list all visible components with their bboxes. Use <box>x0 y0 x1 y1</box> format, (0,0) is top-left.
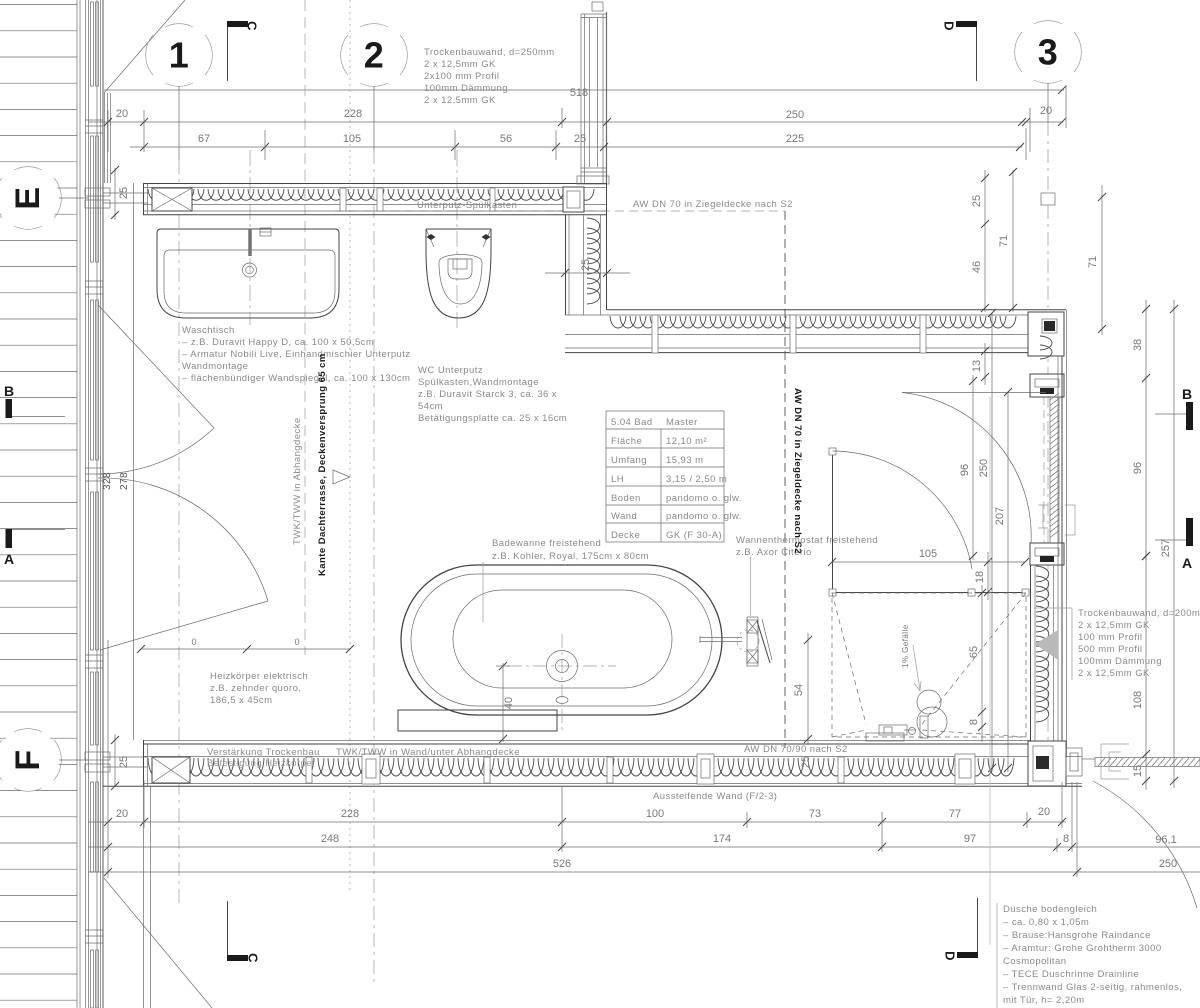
svg-text:2 x 12,5mm GK: 2 x 12,5mm GK <box>1078 620 1150 631</box>
svg-text:E: E <box>9 186 47 209</box>
svg-text:2 x 12,5mm GK: 2 x 12,5mm GK <box>424 95 496 106</box>
svg-text:25: 25 <box>800 756 812 768</box>
svg-text:Kante Dachterrasse, Deckenvers: Kante Dachterrasse, Deckenversprung 65 c… <box>317 353 328 576</box>
svg-text:3: 3 <box>1038 32 1058 73</box>
svg-text:15,93 m: 15,93 m <box>666 455 703 466</box>
svg-text:25: 25 <box>580 259 592 271</box>
svg-text:278: 278 <box>119 472 130 490</box>
svg-text:20: 20 <box>1038 806 1050 818</box>
svg-text:97: 97 <box>964 833 976 845</box>
svg-text:– Aramtur: Grohe Grohtherm 300: – Aramtur: Grohe Grohtherm 3000 <box>1003 943 1162 954</box>
svg-text:12,10 m²: 12,10 m² <box>666 436 707 447</box>
svg-text:– Trennwand Glas 2-seitig, rah: – Trennwand Glas 2-seitig, rahmenlos, <box>1003 982 1182 993</box>
svg-text:228: 228 <box>341 808 359 820</box>
svg-text:Befestigung Heizkörper: Befestigung Heizkörper <box>207 758 316 769</box>
svg-text:207: 207 <box>994 507 1006 525</box>
svg-text:257: 257 <box>1160 539 1172 557</box>
svg-text:Waschtisch: Waschtisch <box>182 325 235 336</box>
svg-text:0: 0 <box>294 637 299 647</box>
svg-text:Aussteifende Wand (F/2-3): Aussteifende Wand (F/2-3) <box>653 791 777 802</box>
svg-text:174: 174 <box>713 833 731 845</box>
svg-text:A: A <box>1182 555 1193 571</box>
svg-text:20: 20 <box>116 808 128 820</box>
svg-text:Umfang: Umfang <box>611 455 647 466</box>
svg-text:TWK/TWW in Abhangdecke: TWK/TWW in Abhangdecke <box>292 417 303 545</box>
svg-text:F: F <box>9 749 47 770</box>
svg-text:25: 25 <box>118 187 130 199</box>
svg-text:73: 73 <box>809 808 821 820</box>
svg-text:54cm: 54cm <box>418 401 443 412</box>
svg-text:105: 105 <box>343 133 361 145</box>
svg-text:C: C <box>246 953 261 963</box>
svg-text:500 mm Profil: 500 mm Profil <box>1078 644 1142 655</box>
svg-text:A: A <box>4 551 15 567</box>
svg-text:2 x 12,5mm GK: 2 x 12,5mm GK <box>424 59 496 70</box>
svg-text:AW DN 70 in Ziegeldecke nach S: AW DN 70 in Ziegeldecke nach S2 <box>792 388 803 554</box>
svg-text:2: 2 <box>364 35 384 76</box>
svg-text:Wand: Wand <box>611 511 637 522</box>
svg-text:TWK/TWW in Wand/unter Abhangde: TWK/TWW in Wand/unter Abhangdecke <box>336 747 520 758</box>
svg-text:– TECE Duschrinne Drainline: – TECE Duschrinne Drainline <box>1003 969 1139 980</box>
svg-text:Dusche bodengleich: Dusche bodengleich <box>1003 904 1097 915</box>
svg-text:– flächenbündiger Wandspiegel,: – flächenbündiger Wandspiegel, ca. 100 x… <box>182 373 410 384</box>
svg-text:65: 65 <box>968 646 980 658</box>
svg-text:Badewanne freistehend: Badewanne freistehend <box>492 538 601 549</box>
svg-text:Verstärkung Trockenbau: Verstärkung Trockenbau <box>207 747 320 758</box>
svg-text:0: 0 <box>191 637 196 647</box>
svg-text:5.04 Bad: 5.04 Bad <box>611 417 653 428</box>
svg-text:328: 328 <box>102 472 113 490</box>
svg-text:z.B. Kohler, Royal, 175cm x 80: z.B. Kohler, Royal, 175cm x 80cm <box>492 551 649 562</box>
svg-text:Betätigungsplatte ca. 25 x 16c: Betätigungsplatte ca. 25 x 16cm <box>418 413 567 424</box>
svg-text:1% Gefälle: 1% Gefälle <box>901 624 910 668</box>
svg-text:38: 38 <box>1132 339 1144 351</box>
svg-text:248: 248 <box>321 833 339 845</box>
svg-text:518: 518 <box>570 87 588 99</box>
svg-text:2 x 12,5mm GK: 2 x 12,5mm GK <box>1078 668 1150 679</box>
svg-text:Decke: Decke <box>611 530 640 541</box>
svg-text:Wannenthermostat freistehend: Wannenthermostat freistehend <box>736 535 878 546</box>
svg-text:– Brause:Hansgrohe Raindance: – Brause:Hansgrohe Raindance <box>1003 930 1151 941</box>
svg-text:186,5 x 45cm: 186,5 x 45cm <box>210 695 272 706</box>
svg-text:Wandmontage: Wandmontage <box>182 361 248 372</box>
svg-text:18: 18 <box>974 571 986 583</box>
svg-text:Heizkörper elektrisch: Heizkörper elektrisch <box>210 671 308 682</box>
svg-text:z.B. Duravit Starck 3, ca. 36: z.B. Duravit Starck 3, ca. 36 x <box>418 389 557 400</box>
svg-text:100mm Dämmung: 100mm Dämmung <box>424 83 508 94</box>
svg-text:96: 96 <box>959 464 971 476</box>
svg-text:Trockenbauwand, d=250mm: Trockenbauwand, d=250mm <box>424 47 555 58</box>
svg-text:25: 25 <box>971 195 983 207</box>
svg-text:Fläche: Fläche <box>611 436 642 447</box>
svg-text:8: 8 <box>968 719 980 725</box>
svg-text:54: 54 <box>793 684 805 696</box>
svg-text:Unterputz-Spülkasten: Unterputz-Spülkasten <box>417 200 517 211</box>
svg-text:B: B <box>4 383 15 399</box>
svg-text:GK (F 30-A): GK (F 30-A) <box>666 530 722 541</box>
svg-text:225: 225 <box>786 133 804 145</box>
svg-text:Cosmopolitan: Cosmopolitan <box>1003 956 1067 967</box>
svg-text:pandomo o. glw.: pandomo o. glw. <box>666 511 742 522</box>
svg-text:B: B <box>1182 386 1193 402</box>
svg-text:8: 8 <box>1063 833 1069 845</box>
svg-text:526: 526 <box>553 858 571 870</box>
svg-text:13: 13 <box>971 360 983 372</box>
svg-text:1: 1 <box>169 35 189 76</box>
svg-text:3,15 / 2,50 m: 3,15 / 2,50 m <box>666 474 727 485</box>
svg-text:56: 56 <box>500 133 512 145</box>
svg-text:71: 71 <box>998 235 1010 247</box>
svg-text:100: 100 <box>646 808 664 820</box>
svg-text:67: 67 <box>198 133 210 145</box>
svg-text:Master: Master <box>666 417 698 428</box>
svg-text:250: 250 <box>978 459 990 477</box>
svg-text:2x100 mm Profil: 2x100 mm Profil <box>424 71 499 82</box>
svg-text:AW DN 70 in Ziegeldecke nach S: AW DN 70 in Ziegeldecke nach S2 <box>633 199 793 210</box>
svg-text:25: 25 <box>118 756 130 768</box>
svg-text:100mm Dämmung: 100mm Dämmung <box>1078 656 1162 667</box>
svg-text:25: 25 <box>574 133 586 145</box>
svg-text:AW DN 70/90 nach S2: AW DN 70/90 nach S2 <box>744 744 848 755</box>
svg-text:108: 108 <box>1132 691 1144 709</box>
svg-text:96: 96 <box>1132 462 1144 474</box>
svg-text:96,1: 96,1 <box>1155 834 1176 846</box>
svg-text:D: D <box>942 21 957 31</box>
svg-text:– ca. 0,80 x 1,05m: – ca. 0,80 x 1,05m <box>1003 917 1089 928</box>
svg-text:71: 71 <box>1087 256 1099 268</box>
svg-text:250: 250 <box>1159 858 1177 870</box>
svg-text:40: 40 <box>503 697 515 709</box>
svg-text:105: 105 <box>919 548 937 560</box>
svg-text:Boden: Boden <box>611 493 641 504</box>
svg-text:LH: LH <box>611 474 624 485</box>
svg-text:z.B. zehnder quoro,: z.B. zehnder quoro, <box>210 683 301 694</box>
svg-text:46: 46 <box>971 261 983 273</box>
svg-text:– Armatur Nobili Live, Einhand: – Armatur Nobili Live, Einhandmischier U… <box>182 349 411 360</box>
svg-text:WC Unterputz: WC Unterputz <box>418 365 483 376</box>
svg-text:– z.B. Duravit Happy D, ca. 10: – z.B. Duravit Happy D, ca. 100 x 50,5cm <box>182 337 374 348</box>
svg-text:Trockenbauwand, d=200m: Trockenbauwand, d=200m <box>1078 608 1200 619</box>
svg-text:20: 20 <box>1040 105 1052 117</box>
svg-text:mit Tür, h= 2,20m: mit Tür, h= 2,20m <box>1003 995 1085 1006</box>
svg-text:250: 250 <box>786 109 804 121</box>
svg-text:228: 228 <box>344 108 362 120</box>
svg-text:pandomo o. glw.: pandomo o. glw. <box>666 493 742 504</box>
svg-text:15: 15 <box>1132 765 1144 777</box>
svg-text:C: C <box>245 21 260 31</box>
svg-text:100 mm Profil: 100 mm Profil <box>1078 632 1142 643</box>
svg-text:77: 77 <box>949 808 961 820</box>
svg-text:D: D <box>943 951 958 961</box>
svg-text:20: 20 <box>116 108 128 120</box>
svg-text:Spülkasten,Wandmontage: Spülkasten,Wandmontage <box>418 377 539 388</box>
